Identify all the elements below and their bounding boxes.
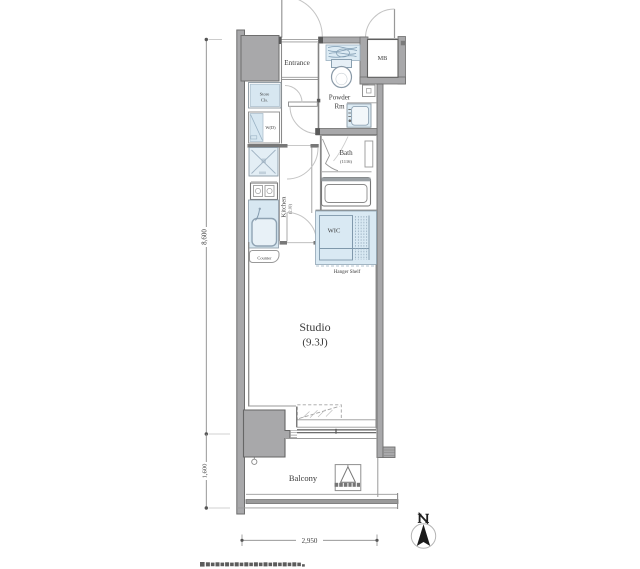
svg-text:(1116): (1116) <box>340 159 352 164</box>
svg-text:Powder: Powder <box>329 94 351 102</box>
svg-text:Bath: Bath <box>339 149 353 157</box>
svg-text:Entrance: Entrance <box>284 59 310 67</box>
svg-text:(9.3J): (9.3J) <box>302 337 328 349</box>
svg-text:Counter: Counter <box>257 256 272 261</box>
svg-text:WIC: WIC <box>328 228 341 235</box>
svg-text:Balcony: Balcony <box>289 473 318 483</box>
svg-text:Studio: Studio <box>299 320 330 334</box>
svg-text:2,950: 2,950 <box>302 537 318 545</box>
svg-text:Store: Store <box>260 92 270 97</box>
svg-text:1,600: 1,600 <box>201 463 208 479</box>
svg-text:Cls.: Cls. <box>261 98 268 103</box>
svg-text:MB: MB <box>378 55 388 62</box>
svg-text:W(D): W(D) <box>265 125 276 130</box>
svg-text:Kitchen: Kitchen <box>281 196 288 218</box>
svg-text:Hanger Shelf: Hanger Shelf <box>334 270 361 275</box>
svg-text:Rm: Rm <box>334 103 345 111</box>
svg-text:8,600: 8,600 <box>200 229 208 245</box>
